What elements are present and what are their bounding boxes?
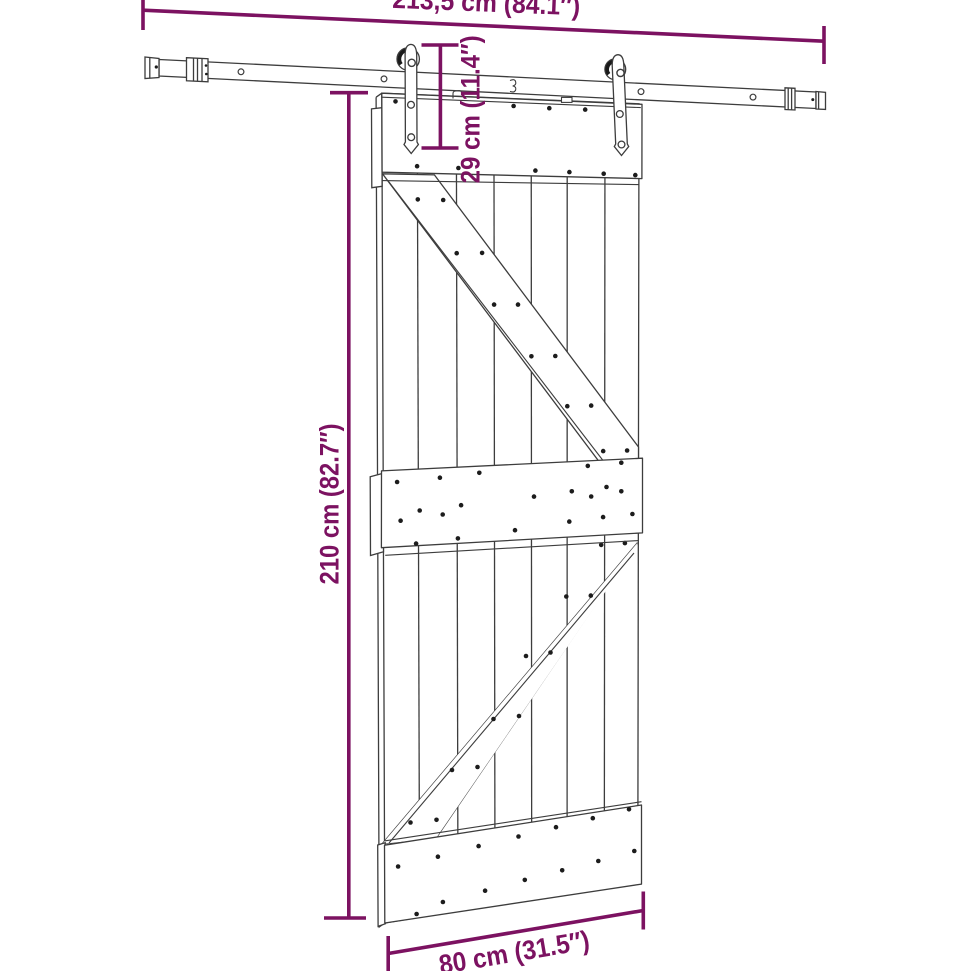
- svg-text:29 cm (11.4″): 29 cm (11.4″): [456, 35, 486, 183]
- svg-text:210 cm (82.7″): 210 cm (82.7″): [315, 424, 345, 585]
